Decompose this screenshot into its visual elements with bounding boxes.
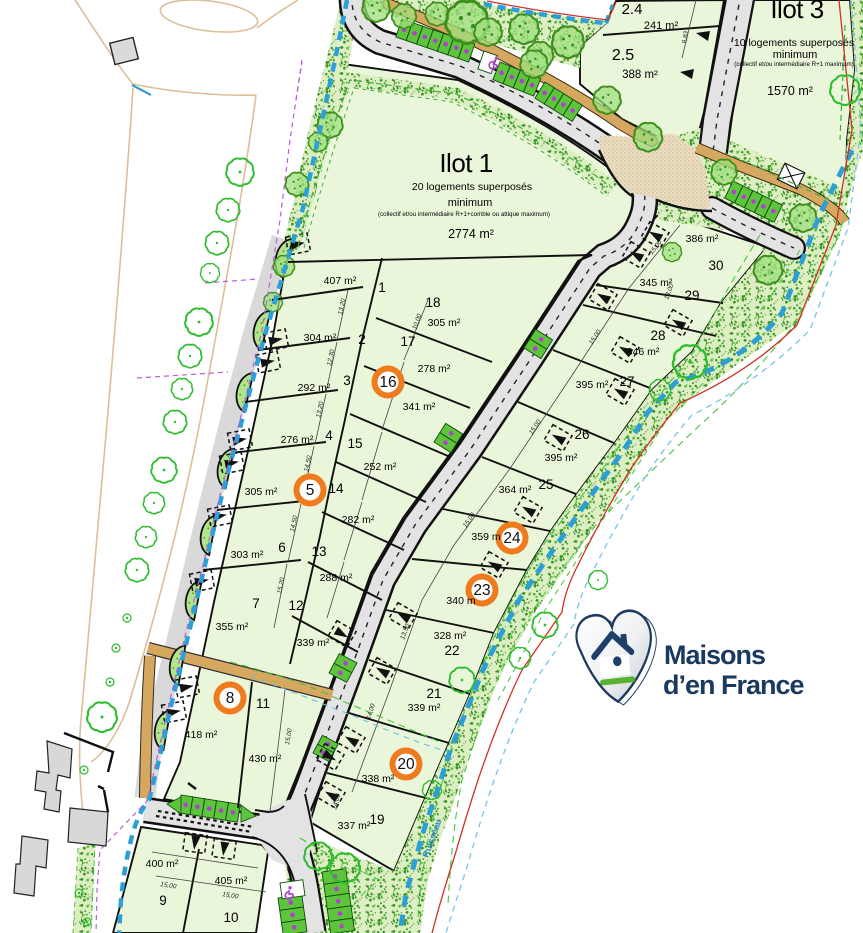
svg-text:2.5: 2.5 (612, 47, 634, 64)
svg-text:252 m²: 252 m² (364, 461, 397, 473)
svg-text:1570 m²: 1570 m² (767, 84, 813, 98)
svg-text:10: 10 (223, 910, 238, 925)
svg-text:395 m²: 395 m² (545, 452, 578, 464)
svg-text:303 m²: 303 m² (231, 549, 264, 561)
svg-text:8: 8 (226, 690, 235, 707)
svg-text:339 m²: 339 m² (408, 702, 441, 714)
svg-text:288 m²: 288 m² (320, 572, 353, 584)
svg-text:328 m²: 328 m² (434, 630, 467, 642)
svg-text:30: 30 (708, 258, 723, 273)
svg-text:345 m²: 345 m² (640, 277, 673, 289)
svg-text:20: 20 (397, 756, 415, 773)
svg-text:430 m²: 430 m² (249, 753, 282, 765)
svg-text:6: 6 (278, 540, 286, 555)
svg-text:276 m²: 276 m² (281, 434, 314, 446)
svg-text:407 m²: 407 m² (324, 275, 357, 287)
svg-text:16: 16 (379, 374, 396, 391)
svg-text:23: 23 (473, 582, 490, 599)
svg-text:17: 17 (400, 334, 415, 349)
svg-text:9: 9 (159, 893, 167, 908)
svg-text:10 logements superposés: 10 logements superposés (734, 37, 854, 49)
svg-text:337 m²: 337 m² (338, 820, 371, 832)
svg-text:355 m²: 355 m² (216, 621, 249, 633)
svg-text:11: 11 (256, 696, 270, 711)
svg-text:3: 3 (343, 373, 351, 388)
svg-text:minimum: minimum (448, 197, 493, 209)
svg-text:2.4: 2.4 (622, 1, 643, 18)
svg-text:20 logements superposés: 20 logements superposés (412, 181, 532, 193)
svg-text:15: 15 (347, 436, 362, 451)
svg-text:388 m²: 388 m² (622, 69, 658, 81)
svg-text:2: 2 (358, 332, 366, 347)
svg-text:(collectif et/ou intermédiaire: (collectif et/ou intermédiaire R+1+combl… (378, 211, 550, 218)
svg-text:340 m: 340 m (446, 595, 475, 607)
svg-text:29: 29 (684, 288, 699, 303)
svg-text:418 m²: 418 m² (185, 729, 218, 741)
svg-text:2774 m²: 2774 m² (448, 227, 494, 241)
svg-text:13: 13 (311, 544, 326, 559)
svg-text:25: 25 (538, 477, 553, 492)
svg-text:24: 24 (503, 530, 521, 547)
svg-text:minimum: minimum (773, 49, 818, 61)
svg-text:Ilot 3: Ilot 3 (770, 0, 823, 24)
svg-text:305 m²: 305 m² (245, 486, 278, 498)
svg-text:405 m²: 405 m² (215, 875, 248, 887)
svg-text:21: 21 (426, 686, 441, 701)
svg-text:22: 22 (444, 643, 459, 658)
svg-text:5: 5 (306, 482, 315, 499)
svg-text:292 m²: 292 m² (298, 382, 331, 394)
svg-text:338 m²: 338 m² (362, 773, 395, 785)
svg-text:282 m²: 282 m² (342, 514, 375, 526)
svg-text:241 m²: 241 m² (644, 20, 679, 32)
svg-text:14: 14 (328, 481, 344, 496)
svg-text:341 m²: 341 m² (403, 401, 436, 413)
svg-text:18: 18 (425, 295, 440, 310)
svg-text:Ilot 1: Ilot 1 (439, 148, 492, 178)
svg-text:7: 7 (252, 596, 260, 611)
svg-text:359 m: 359 m (471, 531, 500, 543)
svg-text:400 m²: 400 m² (146, 858, 179, 870)
svg-text:28: 28 (650, 328, 665, 343)
svg-text:12: 12 (288, 598, 303, 613)
svg-text:304 m²: 304 m² (304, 332, 337, 344)
svg-text:278 m²: 278 m² (418, 363, 451, 375)
svg-text:395 m²: 395 m² (576, 379, 609, 391)
svg-text:1: 1 (378, 280, 386, 295)
svg-text:364 m²: 364 m² (499, 484, 532, 496)
svg-text:d’en France: d’en France (663, 670, 805, 700)
svg-text:386 m²: 386 m² (686, 233, 719, 245)
svg-text:27: 27 (619, 374, 634, 389)
svg-text:346 m²: 346 m² (627, 346, 660, 358)
svg-text:Maisons: Maisons (664, 640, 765, 670)
svg-text:4: 4 (325, 428, 333, 443)
svg-text:339 m²: 339 m² (297, 637, 330, 649)
svg-text:305 m²: 305 m² (428, 317, 461, 329)
svg-text:19: 19 (369, 812, 384, 827)
svg-text:26: 26 (574, 427, 589, 442)
svg-text:(collectif et/ou intermédiaire: (collectif et/ou intermédiaire R+1 maxim… (734, 61, 854, 68)
